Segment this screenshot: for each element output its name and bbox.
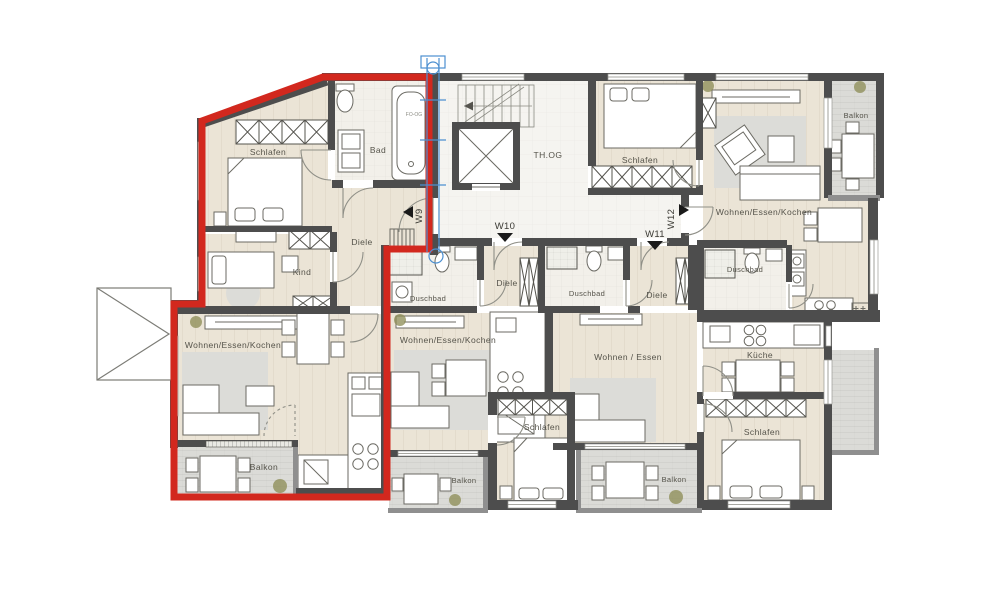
room-label-w10-duschbad: Duschbad	[410, 294, 446, 303]
svg-text:W12: W12	[666, 209, 677, 229]
room-label-w12-schlafen: Schlafen	[622, 155, 658, 165]
room-label-w12-duschbad: Duschbad	[727, 265, 763, 274]
toilet	[336, 84, 354, 112]
room-label-w10-balkon: Balkon	[452, 476, 477, 485]
bed-double	[708, 440, 814, 500]
bed-double	[604, 84, 696, 148]
plant-icon	[669, 490, 683, 504]
section-note: FO-OG	[406, 112, 422, 118]
dining-table	[432, 360, 486, 396]
room-label-w10-diele: Diele	[496, 278, 517, 288]
elevator	[452, 122, 520, 191]
svg-text:W11: W11	[645, 229, 665, 240]
svg-text:W9: W9	[414, 209, 425, 224]
shower	[547, 247, 577, 269]
stairwell-label: TH.OG	[534, 150, 563, 160]
room-label-w11-duschbad: Duschbad	[569, 289, 605, 298]
room-label-w12-wohnen: Wohnen/Essen/Kochen	[716, 207, 812, 217]
room-label-w10-wohnen: Wohnen/Essen/Kochen	[400, 335, 496, 345]
tv-board	[396, 316, 464, 328]
room-label-w9-kind: Kind	[293, 267, 312, 277]
room-label-w9-balkon: Balkon	[250, 462, 278, 472]
room-label-w11-diele: Diele	[646, 290, 667, 300]
room-label-w11-schlafen: Schlafen	[744, 427, 780, 437]
sofa	[740, 166, 820, 200]
room-label-w9-diele: Diele	[351, 237, 372, 247]
sink	[608, 247, 624, 260]
plant-icon	[394, 314, 406, 326]
room-label-w9-schlafen: Schlafen	[250, 147, 286, 157]
radiator	[390, 229, 414, 246]
sink	[455, 247, 477, 260]
dining-table	[804, 208, 862, 242]
dining-table	[722, 360, 794, 392]
kitchen-counter	[703, 322, 824, 348]
room-label-w9-bad: Bad	[370, 145, 386, 155]
room-label-w9-wohnen: Wohnen/Essen/Kochen	[185, 340, 281, 350]
plant-icon	[190, 316, 202, 328]
room-label-w11-balkon: Balkon	[662, 475, 687, 484]
room-label-w11-kueche: Küche	[747, 350, 773, 360]
sink	[766, 249, 782, 261]
plant-icon	[449, 494, 461, 506]
room-label-w12-balkon: Balkon	[844, 111, 869, 120]
side-table	[768, 136, 794, 162]
tv-board	[712, 90, 800, 103]
floor-plan-canvas: Schlafen Bad Diele Kind Wohnen/Essen/Koc…	[0, 0, 1000, 601]
plant-icon	[273, 479, 287, 493]
svg-text:W10: W10	[495, 221, 515, 232]
toilet	[586, 246, 602, 271]
tv-board	[580, 314, 642, 325]
canopy-outline	[97, 288, 171, 380]
room-label-w11-wohnen: Wohnen / Essen	[594, 352, 662, 362]
plant-icon	[702, 80, 714, 92]
bath-vanity	[338, 130, 364, 172]
room-label-w10-schlafen: Schlafen	[524, 422, 560, 432]
plant-icon	[854, 81, 866, 93]
